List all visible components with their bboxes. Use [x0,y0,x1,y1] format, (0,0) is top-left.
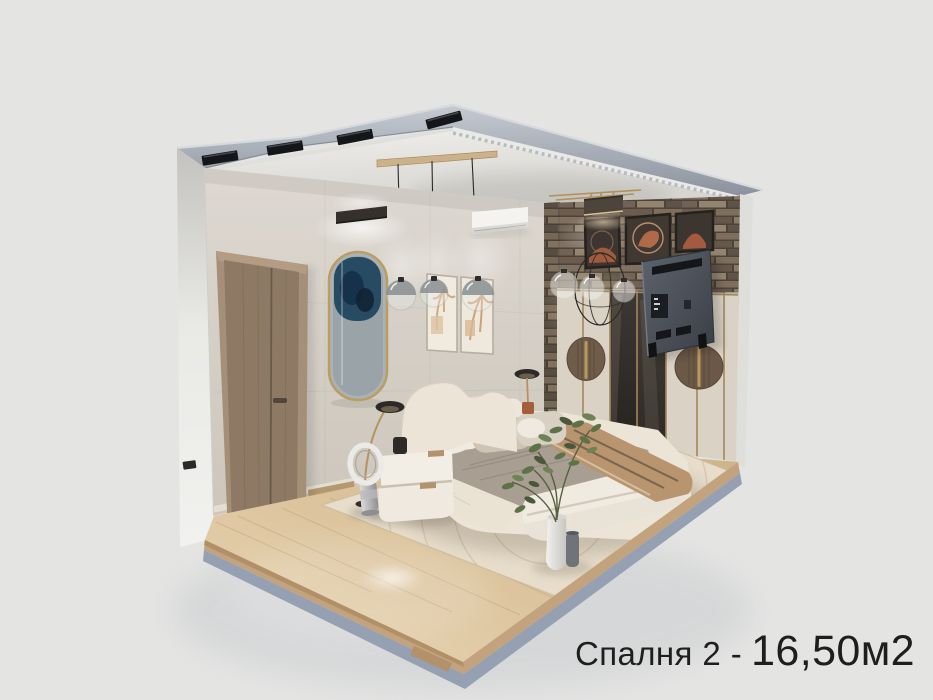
room-area-value: 16,50м2 [751,627,915,676]
tv-mount-bracket [698,333,707,349]
gallery-frame-3 [676,211,713,252]
tv-mount-bracket [648,342,657,358]
bedroom-render-image: Спалня 2 - 16,50м2 [0,0,933,700]
drawer-handle [420,482,436,489]
gallery-frame-2 [626,214,670,264]
mirror [329,252,387,408]
bedroom-3d-render [0,0,933,700]
door-panel [224,260,299,527]
portable-lamp [393,437,407,454]
air-conditioner [472,207,528,236]
white-vase [546,516,567,570]
door-handle [273,398,287,403]
tv-port-panel [651,294,668,318]
drawer-handle [428,450,444,457]
gray-vase [566,532,579,567]
nightstand [379,450,454,522]
caption: Спалня 2 - 16,50м2 [575,627,915,676]
tv-back [642,250,722,362]
wardrobe-medallion [567,338,605,381]
room-name-label: Спалня 2 - [575,635,742,673]
cup [522,402,534,414]
nightstand-bottom-drawer [379,483,454,522]
pendant-globes [386,276,494,311]
door [216,251,314,537]
floor-light-pool [360,564,424,592]
